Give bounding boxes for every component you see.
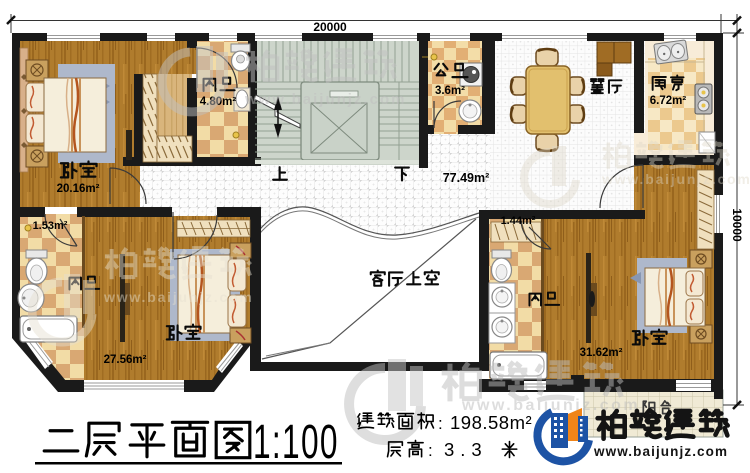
svg-text:10000: 10000 — [730, 208, 744, 242]
svg-text:31.62m²: 31.62m² — [580, 347, 623, 359]
svg-text:20.16m²: 20.16m² — [57, 183, 100, 195]
svg-text:www.baijunjz.com: www.baijunjz.com — [103, 289, 254, 305]
svg-text:1:100: 1:100 — [253, 414, 339, 468]
svg-text:1.44m²: 1.44m² — [501, 215, 536, 227]
svg-text:6.72m²: 6.72m² — [650, 95, 687, 107]
svg-text:3.6m²: 3.6m² — [435, 85, 465, 97]
svg-text:3.3: 3.3 — [444, 439, 488, 460]
svg-text:27.56m²: 27.56m² — [104, 354, 147, 366]
svg-text::: : — [428, 441, 433, 460]
svg-text:77.49m²: 77.49m² — [443, 171, 490, 185]
svg-text:www.baijunjz.com: www.baijunjz.com — [601, 171, 750, 187]
svg-text:1.53m²: 1.53m² — [33, 220, 68, 232]
svg-text:20000: 20000 — [313, 20, 347, 34]
svg-text::: : — [438, 414, 443, 433]
svg-text:www.baijunjz.com: www.baijunjz.com — [593, 444, 728, 459]
svg-text:198.58m²: 198.58m² — [450, 412, 532, 433]
svg-text:www.baijunjz.com: www.baijunjz.com — [244, 91, 406, 108]
